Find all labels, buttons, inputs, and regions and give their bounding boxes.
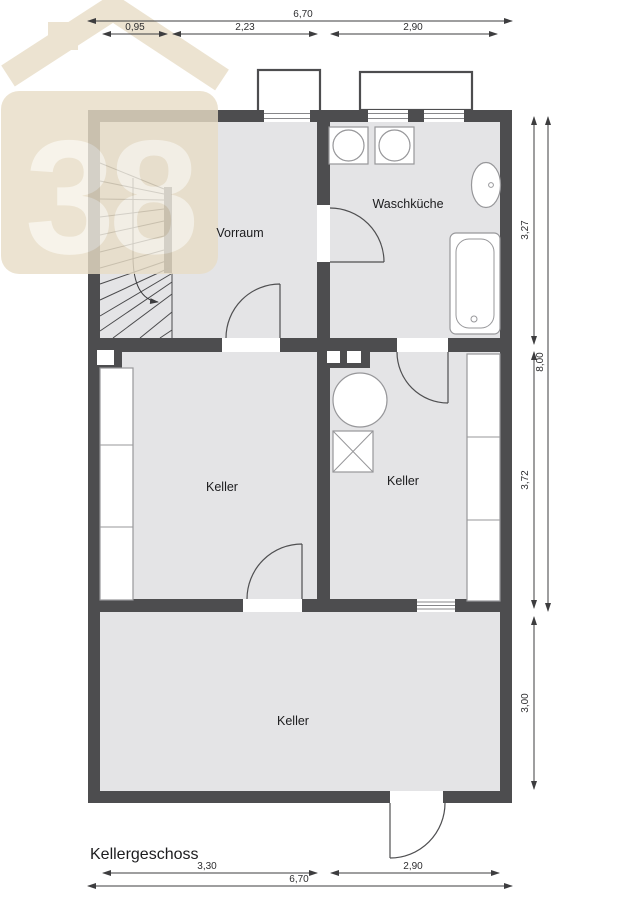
watermark-number: 38 [25, 107, 195, 288]
washing-machine-2-icon [375, 127, 414, 164]
niche-cavity [97, 350, 114, 365]
room-label-keller-bottom: Keller [277, 714, 309, 728]
door-opening-wasch-keller [397, 338, 448, 352]
shelf-left [100, 368, 133, 600]
washing-machine-1-icon [329, 127, 368, 164]
dim-label-right-seg1: 3,27 [520, 220, 531, 240]
dim-label-right-seg2: 3,72 [520, 470, 531, 490]
chimney-flue-1 [327, 351, 340, 363]
watermark-house-icon [8, 8, 222, 80]
door-opening-vorraum-keller [222, 338, 280, 352]
wall-mid-upper [88, 338, 512, 352]
door-opening-exterior [390, 791, 443, 803]
wall-keller-keller [317, 338, 330, 612]
watermark: 38 [1, 8, 222, 288]
room-label-keller-left: Keller [206, 480, 238, 494]
wall-bottom [88, 791, 512, 803]
dim-label-bottom-seg2: 2,90 [403, 861, 423, 872]
dim-label-bottom-seg1: 3,30 [197, 861, 217, 872]
door-opening-vorraum-wasch [317, 205, 330, 262]
door-arc-exterior [390, 803, 445, 858]
floor-plan-svg: 38 6,70 0,95 2,23 2,90 3,27 3,72 3,00 8,… [0, 0, 636, 900]
shaft-icon [333, 431, 373, 472]
light-well-left [258, 70, 320, 112]
window-opening-wasch-2 [424, 110, 464, 122]
room-label-vorraum: Vorraum [216, 226, 263, 240]
bathtub-icon [450, 233, 500, 334]
sink-icon [472, 163, 501, 208]
boiler-icon [333, 373, 387, 427]
shelf-right [467, 354, 500, 601]
window-opening-wasch-1 [368, 110, 408, 122]
wall-right [500, 110, 512, 803]
dim-label-top-seg1: 0,95 [125, 22, 145, 33]
dim-label-bottom-total: 6,70 [289, 874, 309, 885]
dim-label-right-total: 8,00 [535, 352, 546, 372]
light-well-right [360, 72, 472, 110]
dim-label-top-seg2: 2,23 [235, 22, 255, 33]
room-label-keller-right: Keller [387, 474, 419, 488]
room-label-waschkueche: Waschküche [372, 197, 443, 211]
door-opening-keller-left [243, 599, 302, 612]
chimney-flue-2 [347, 351, 361, 363]
window-opening-vorraum [264, 110, 310, 122]
dim-label-top-seg3: 2,90 [403, 22, 423, 33]
dim-label-top-total: 6,70 [293, 9, 313, 20]
plan-title: Kellergeschoss [90, 846, 199, 863]
dim-label-right-seg3: 3,00 [520, 693, 531, 713]
floor-plan-page: 38 6,70 0,95 2,23 2,90 3,27 3,72 3,00 8,… [0, 0, 636, 900]
